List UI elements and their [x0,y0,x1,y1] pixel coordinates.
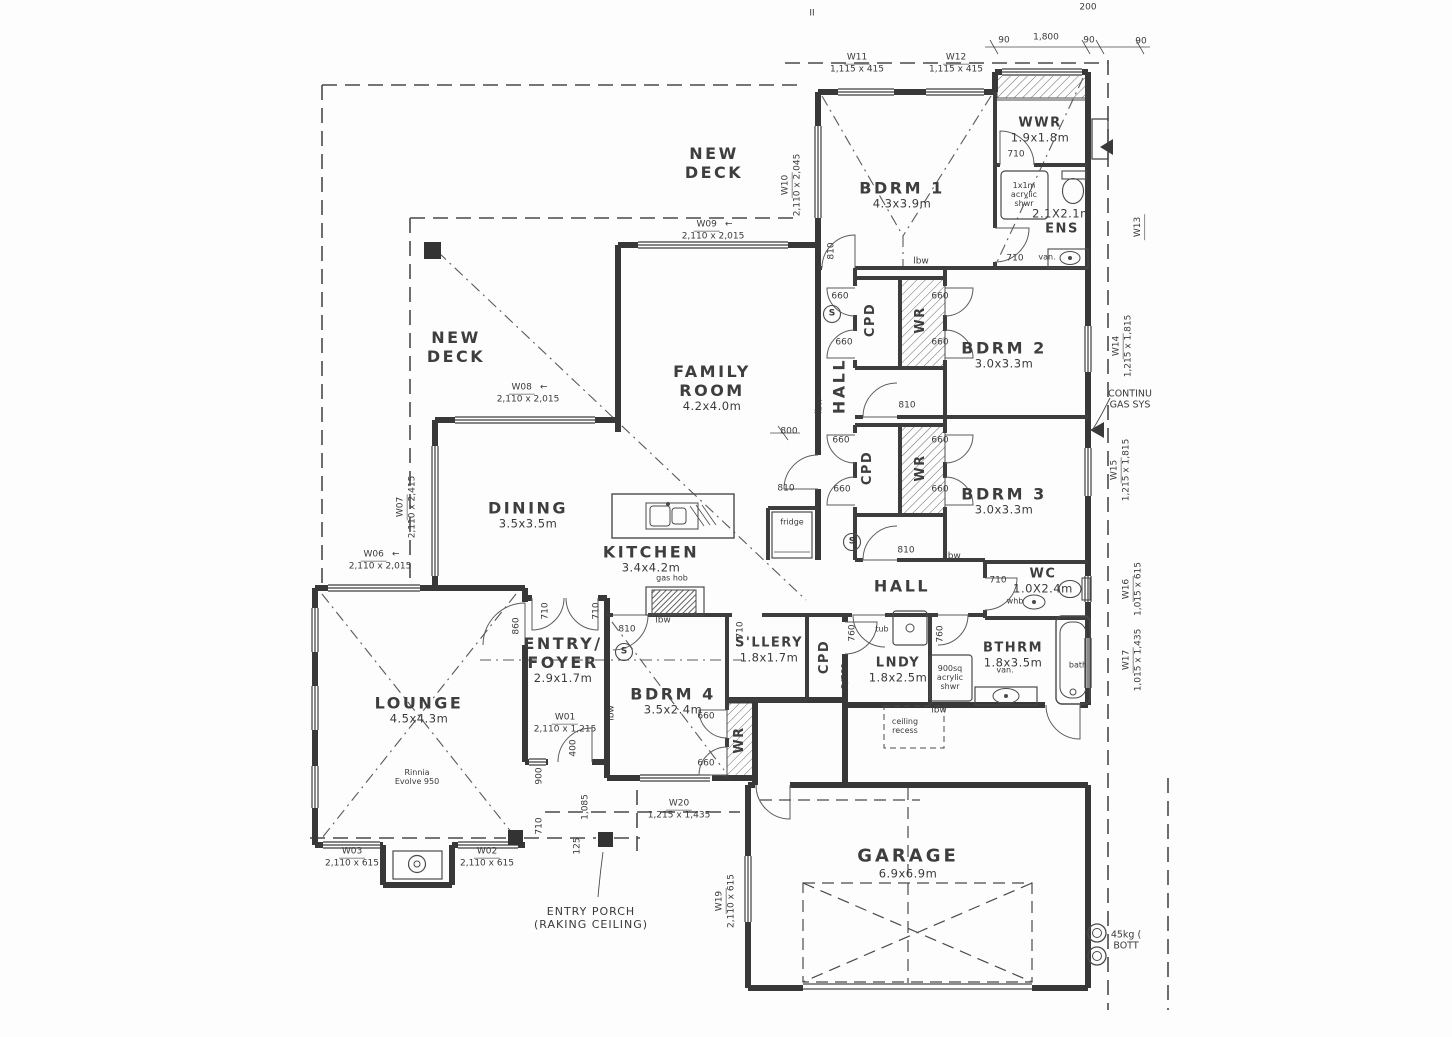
note-lbw: lbw [913,257,929,268]
window-id: W19 [715,888,727,914]
room-size: 6.9x6.9m [857,867,959,881]
note-lbw: lbw [931,706,947,717]
room-name: ENTRY PORCH [534,905,648,918]
room-name: ROOM [673,381,751,400]
window-size: 1,115 x 415 [830,65,884,76]
dim-710: 710 [592,602,603,619]
room-name: DECK [427,347,485,366]
smoke-alarm-icon: S [829,309,835,320]
window-id: W14 [1112,333,1124,359]
window-label-w06: W06 ← 2,110 x 2,015 [349,542,412,573]
window-id: W03 [339,847,365,859]
room-label-hall-upper: HALL [829,358,848,414]
window-size: 1,215 x 1,435 [648,811,711,822]
dim-860: 860 [512,617,523,634]
room-label-new-deck-top: NEW DECK [685,144,743,182]
window-label-w14: W14 1,215 x 1,815 [1104,315,1135,378]
note-text: CONTINU [1108,389,1152,400]
note-text: 45kg ( [1111,930,1141,941]
opening-arrow: ← [392,550,400,560]
room-size: 1.8x2.5m [869,671,928,685]
window-label-w20: W20 1,215 x 1,435 [648,791,711,822]
dim-2-760: 2/760 [841,663,852,689]
dim-90: 90 [1135,37,1146,48]
room-label-lndy: LNDY 1.8x2.5m [869,655,928,684]
dim-1085: 1,085 [581,794,592,820]
dim-800: 800 [780,427,797,438]
window-id: W12 [943,53,969,65]
room-name: GARAGE [857,845,959,867]
fixture-fridge: fridge [780,519,803,528]
room-size: 4.2x4.0m [673,400,751,414]
window-size: 2,110 x 615 [727,874,738,928]
closet-label-wr: WR [732,726,748,753]
window-size: 2,110 x 2,015 [497,395,560,406]
window-id: W02 [474,847,500,859]
room-name: ENS [1032,221,1092,237]
fixture-text: Evolve 950 [395,778,439,787]
fixture-text: shwr [1011,199,1037,208]
window-id: W20 [666,799,692,811]
smoke-alarm-icon: S [849,537,855,548]
room-label-entry-porch: ENTRY PORCH (RAKING CEILING) [534,905,648,931]
window-id: W01 [552,713,578,725]
dim-660: 660 [835,338,852,349]
room-size: 4.5x4.3m [375,713,464,727]
room-size: 4.3x3.9m [859,198,944,212]
room-label-new-deck-left: NEW DECK [427,328,485,366]
closet-label-cpd: CPD [863,303,879,337]
window-size: 2,110 x 2,415 [408,476,419,539]
dim-125: 125 [573,837,584,854]
closet-label-wr: WR [913,454,929,481]
window-label-w12: W12 1,115 x 415 [929,45,983,76]
dim-200: 200 [1079,3,1096,14]
fixture-vanity: van. [996,667,1013,676]
room-size: 3.0x3.3m [961,358,1046,372]
window-size: 2,110 x 2,015 [682,232,745,243]
room-size: 2.9x1.7m [523,672,602,686]
window-id: W13 [1133,214,1145,240]
fixture-bath: bath [1069,662,1087,671]
dim-1800: 1,800 [1033,33,1059,44]
window-label-w09: W09 ← 2,110 x 2,015 [682,212,745,243]
room-name: KITCHEN [603,543,699,562]
room-name: BDRM 2 [961,339,1046,358]
room-label-dining: DINING 3.5x3.5m [488,499,568,532]
window-label-w10: W10 2,110 x 2,045 [773,154,804,217]
dim-710: 710 [1007,150,1024,161]
window-label-w16: W16 1,015 x 615 [1114,562,1145,616]
window-size: 1,215 x 1,815 [1124,315,1135,378]
room-name: ENTRY/ [523,634,602,653]
window-label-w15: W15 1,215 x 1,815 [1102,439,1133,502]
window-label-w17: W17 1,015 x 1,435 [1114,629,1145,692]
note-ceiling-recess: ceiling recess [892,718,918,736]
room-name: FAMILY [673,362,751,381]
dim-660: 660 [833,485,850,496]
window-id: W09 [693,220,719,232]
closet-label-wr: WR [913,306,929,333]
window-size: 1,015 x 1,435 [1134,629,1145,692]
room-size: 2.1X2.1m [1032,207,1092,221]
dim-810: 810 [777,484,794,495]
fixture-whb: whb [1007,598,1024,607]
dim-810: 810 [898,401,915,412]
room-name: LOUNGE [375,694,464,713]
fixture-tub: tub [875,626,888,635]
room-name: WC [1013,566,1073,582]
dim-710: 710 [736,621,747,638]
room-name: NEW [427,328,485,347]
room-label-garage: GARAGE 6.9x6.9m [857,845,959,880]
window-size: 1,115 x 415 [929,65,983,76]
room-label-kitchen: KITCHEN 3.4x4.2m [603,543,699,576]
dim-660: 660 [697,712,714,723]
smoke-alarm-icon: S [621,647,627,658]
note-gas-bottles: 45kg ( BOTT [1111,930,1141,953]
room-size: 1.8x1.7m [735,651,803,665]
window-id: W07 [396,494,408,520]
room-size: 3.0x3.3m [961,504,1046,518]
room-label-lounge: LOUNGE 4.5x4.3m [375,694,464,727]
fixture-text: shwr [937,682,963,691]
window-label-w03: W03 2,110 x 615 [325,839,379,870]
note-lbw: lbw [945,552,961,563]
window-size: 2,110 x 2,015 [349,562,412,573]
window-id: W17 [1122,647,1134,673]
room-label-wc: WC 1.0X2.4m [1013,566,1073,595]
note-text: GAS SYS [1108,400,1152,411]
room-name: FOYER [523,653,602,672]
room-name: (RAKING CEILING) [534,918,648,931]
note-lbw: lbw [607,705,618,721]
window-id: W16 [1122,576,1134,602]
note-lbw: lbw [655,616,671,627]
dim-760: 760 [936,625,947,642]
opening-arrow: ← [725,220,733,230]
fixture-gas-hob: gas hob [656,575,688,584]
room-name: BDRM 3 [961,485,1046,504]
room-name: LNDY [869,655,928,671]
room-label-bdrm1: BDRM 1 4.3x3.9m [859,179,944,212]
window-size: 2,110 x 1,215 [534,725,597,736]
closet-label-cpd: CPD [860,451,876,485]
window-label-w13: W13 [1125,214,1145,240]
fixture-shower-900: 900sq acrylic shwr [937,665,963,691]
dim-660: 660 [931,292,948,303]
window-size: 2,110 x 615 [460,859,514,870]
room-size: 3.5x3.5m [488,518,568,532]
fixture-shower-1x1: 1x1m acrylic shwr [1011,182,1037,208]
room-label-ens: 2.1X2.1m ENS [1032,207,1092,236]
window-label-w11: W11 1,115 x 415 [830,45,884,76]
room-name: WWR [1011,115,1070,131]
dim-660: 660 [931,436,948,447]
dim-660: 660 [697,759,714,770]
dim-710: 710 [989,576,1006,587]
room-label-bdrm2: BDRM 2 3.0x3.3m [961,339,1046,372]
dim-400: 400 [569,739,580,756]
window-id: W15 [1110,457,1122,483]
dim-810: 810 [827,242,838,259]
dim-710: 710 [541,602,552,619]
room-size: 1.0X2.4m [1013,582,1073,596]
window-id: W10 [781,172,793,198]
dim-90: 90 [998,36,1009,47]
floor-plan-page: NEW DECK NEW DECK BDRM 1 4.3x3.9m WWR 1.… [0,0,1452,1037]
room-name: BDRM 4 [630,685,715,704]
dim-90: 90 [1083,36,1094,47]
room-label-hall-lower: HALL [874,576,930,595]
room-label-bdrm3: BDRM 3 3.0x3.3m [961,485,1046,518]
note-gas-system: CONTINU GAS SYS [1108,389,1152,412]
section-tick-mark: II [809,9,814,20]
window-size: 1,015 x 615 [1134,562,1145,616]
window-label-w02: W02 2,110 x 615 [460,839,514,870]
window-size: 2,110 x 615 [325,859,379,870]
room-label-sllery: S'LLERY 1.8x1.7m [735,635,803,664]
dim-660: 660 [931,485,948,496]
room-label-wwr: WWR 1.9x1.8m [1011,115,1070,144]
dim-810: 810 [897,546,914,557]
dim-710: 710 [535,817,546,834]
dim-900: 900 [535,767,546,784]
room-name: BDRM 1 [859,179,944,198]
room-name: DECK [685,163,743,182]
room-name: BTHRM [983,640,1043,656]
dim-760: 760 [848,624,859,641]
fixture-fireplace: Rinnia Evolve 950 [395,769,439,787]
opening-arrow: ← [540,383,548,393]
fixture-vanity: van. [1038,254,1055,263]
dim-660: 660 [832,436,849,447]
window-id: W06 [360,550,386,562]
note-text: BOTT [1111,941,1141,952]
room-label-entry-foyer: ENTRY/ FOYER 2.9x1.7m [523,634,602,686]
room-name: NEW [685,144,743,163]
room-size: 1.9x1.8m [1011,131,1070,145]
room-label-family-room: FAMILY ROOM 4.2x4.0m [673,362,751,414]
window-size: 1,215 x 1,815 [1122,439,1133,502]
room-name: DINING [488,499,568,518]
dim-660: 660 [931,338,948,349]
dim-660: 660 [831,292,848,303]
window-label-w07: W07 2,110 x 2,415 [388,476,419,539]
window-size: 2,110 x 2,045 [793,154,804,217]
dim-710: 710 [1006,254,1023,265]
window-id: W11 [844,53,870,65]
dim-810: 810 [618,625,635,636]
window-id: W08 [508,383,534,395]
window-label-w01: W01 2,110 x 1,215 [534,705,597,736]
note-text: recess [892,727,918,736]
window-label-w19: W19 2,110 x 615 [707,874,738,928]
closet-label-cpd: CPD [817,640,833,674]
note-lbw: lbw [815,398,826,414]
window-label-w08: W08 ← 2,110 x 2,015 [497,375,560,406]
